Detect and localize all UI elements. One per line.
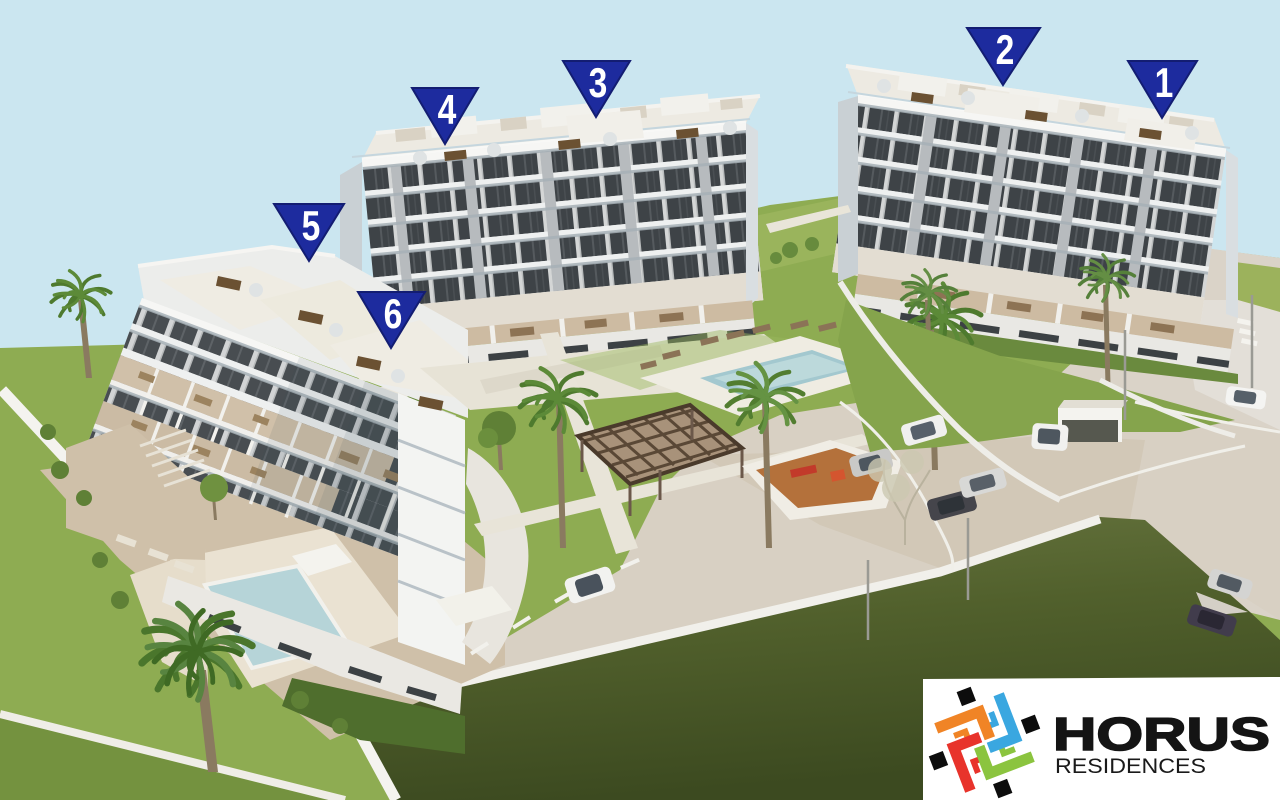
svg-text:6: 6: [384, 292, 403, 338]
svg-text:5: 5: [302, 204, 321, 250]
svg-text:4: 4: [438, 88, 457, 134]
svg-text:RESIDENCES: RESIDENCES: [1055, 754, 1206, 778]
svg-text:3: 3: [589, 61, 608, 107]
svg-text:2: 2: [996, 28, 1015, 74]
svg-text:1: 1: [1155, 61, 1174, 107]
svg-text:HORUS: HORUS: [1053, 708, 1270, 760]
